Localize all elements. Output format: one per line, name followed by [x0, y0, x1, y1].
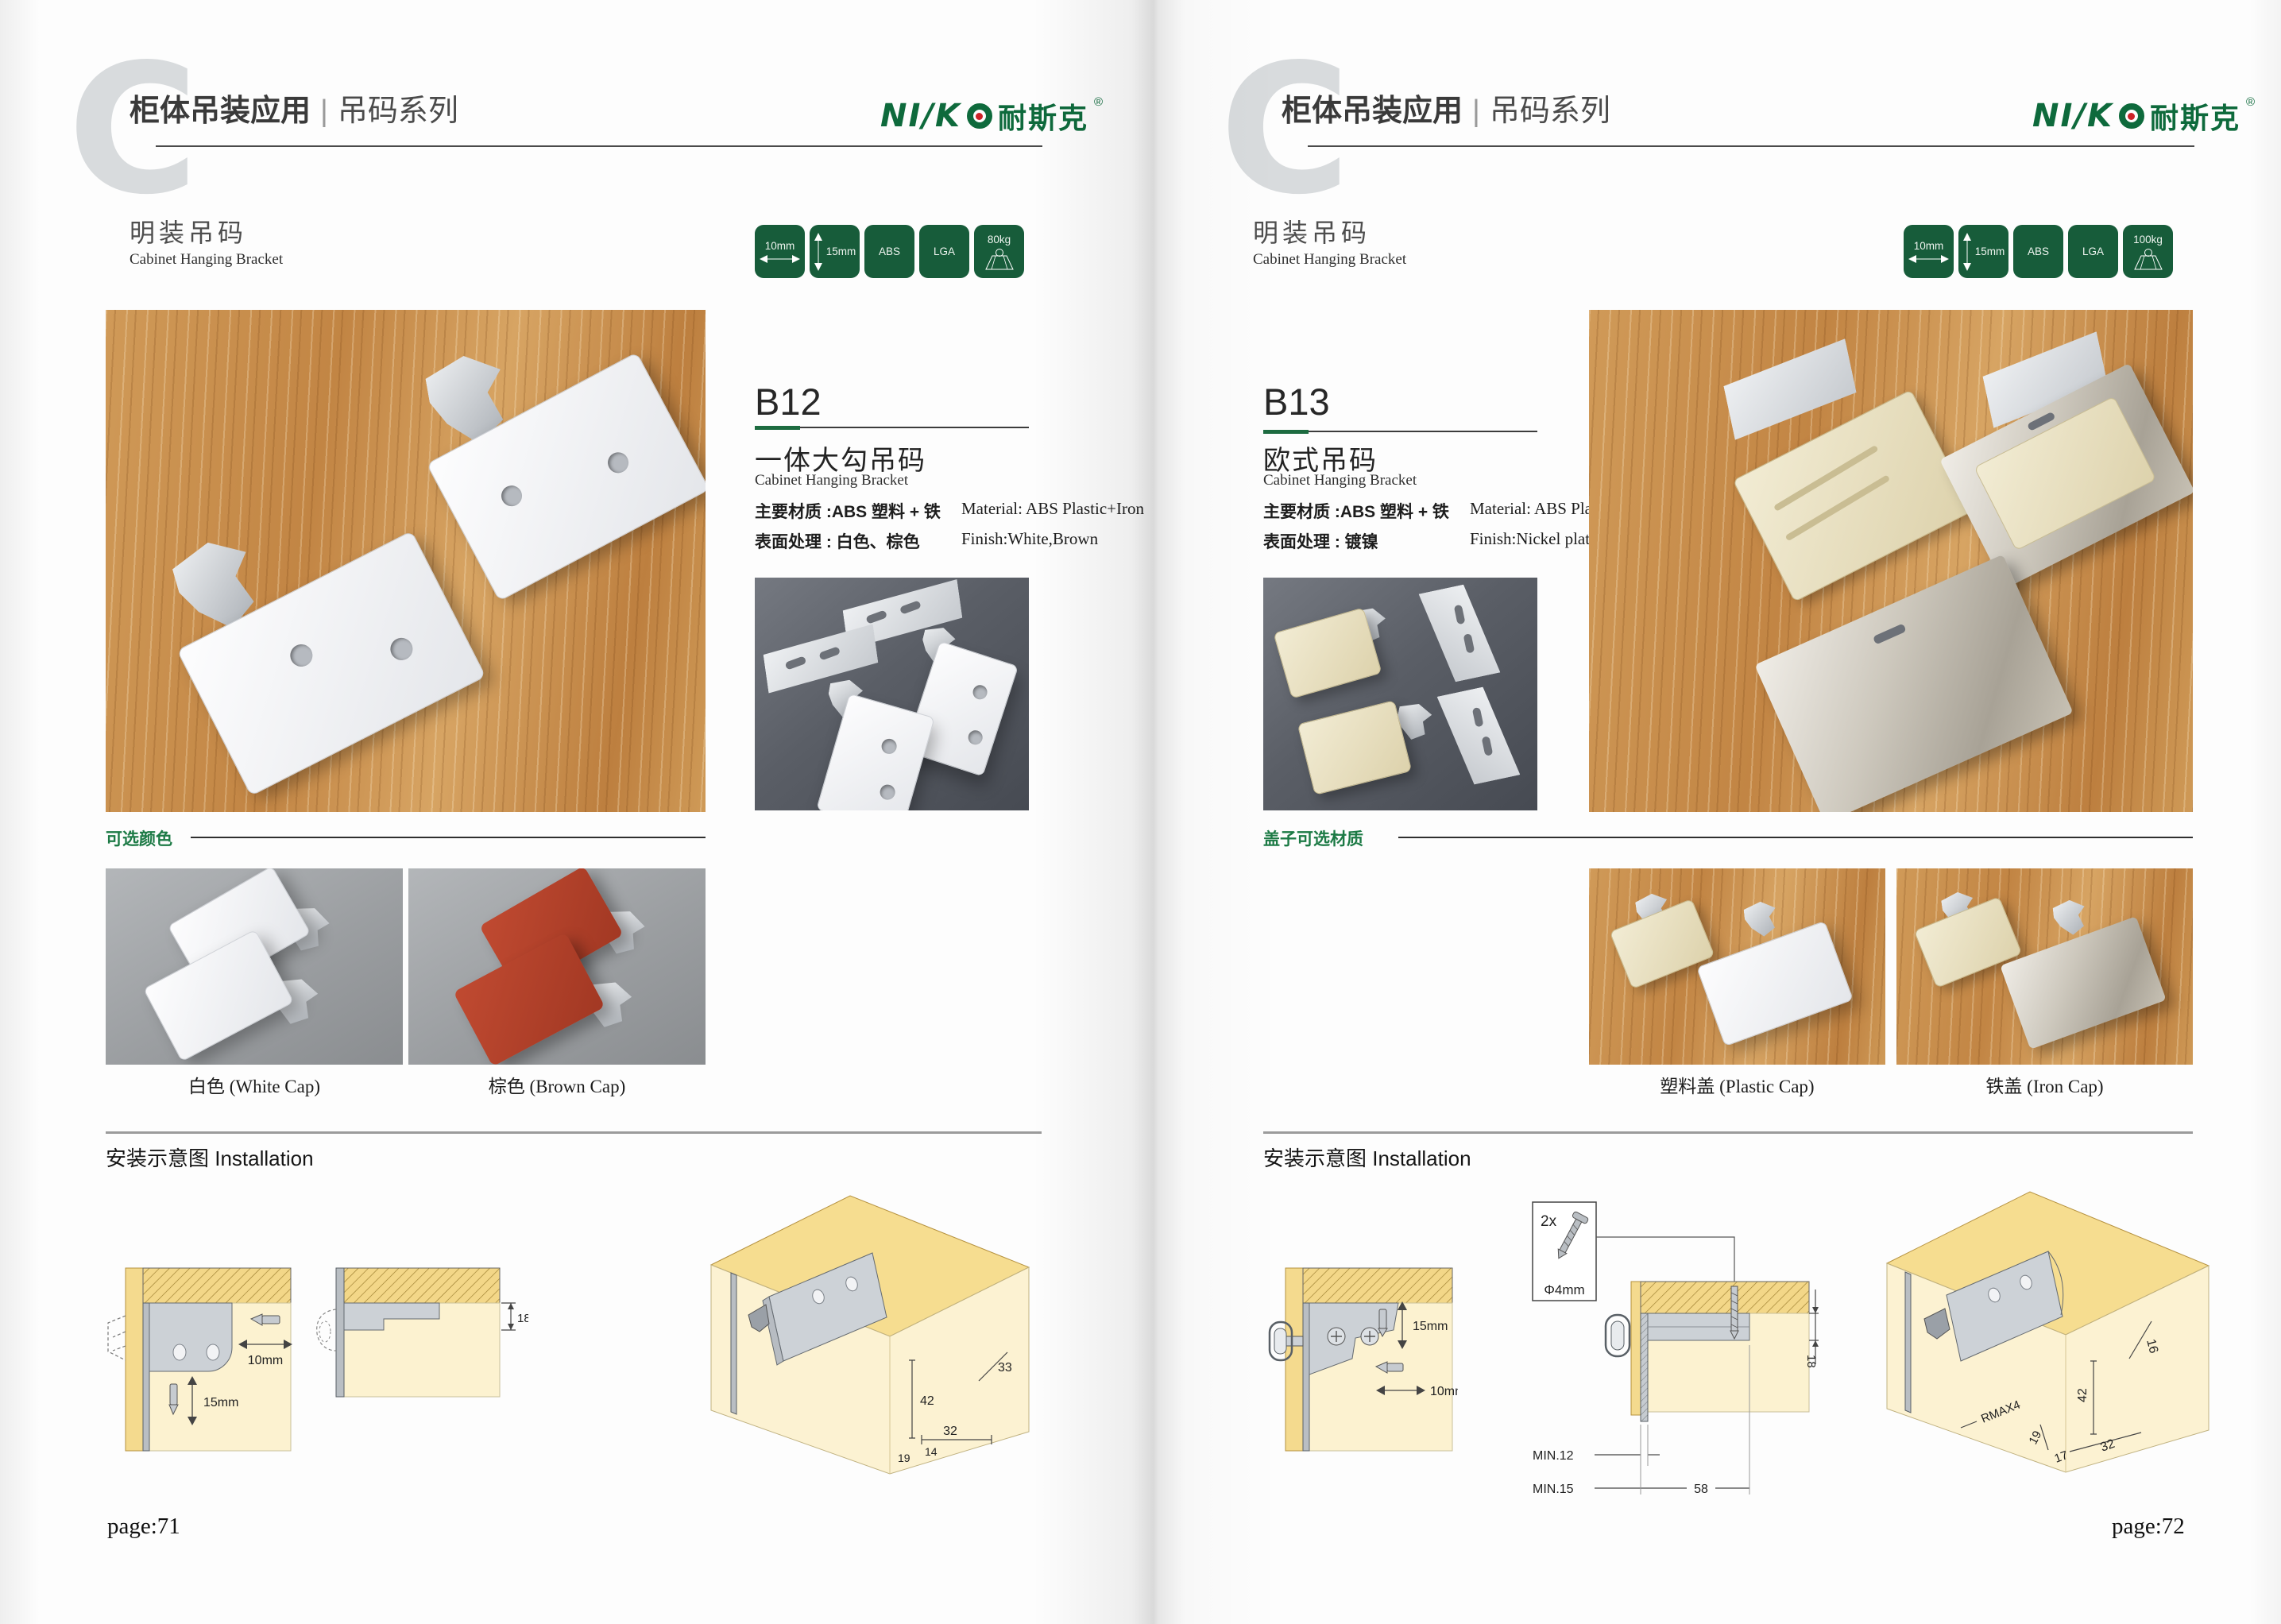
product-photo-detail — [755, 578, 1029, 810]
installation-diagram-section: 2x Φ4mm 18 — [1529, 1196, 1823, 1510]
dim-18: 18 — [1804, 1355, 1818, 1368]
product-photo-main — [106, 310, 706, 812]
screw-count-label: 2x — [1541, 1213, 1557, 1230]
badge-cert: LGA — [2068, 225, 2118, 278]
badge-material: ABS — [864, 225, 914, 278]
logo-latin-text: NI/K — [880, 98, 961, 134]
option-photo-plastic — [1589, 868, 1885, 1065]
rail-slot — [785, 655, 807, 670]
installation-diagram-side: 18 — [312, 1263, 528, 1402]
logo-cjk-text: 耐斯克 — [2150, 95, 2240, 137]
dim-42: 42 — [920, 1394, 934, 1408]
logo-red-dot-icon — [2128, 113, 2135, 120]
arrow-horizontal-icon — [760, 254, 800, 264]
spec-badges: 10mm 15mm ABS LGA 80kg — [755, 225, 1024, 278]
diagram-svg: 42 16 RMAX4 19 17 32 — [1867, 1172, 2217, 1478]
header-title-bold: 柜体吊装应用 — [130, 95, 311, 128]
header-title-light: 吊码系列 — [1490, 95, 1610, 128]
badge-height-label: 15mm — [1975, 246, 2005, 257]
page-number: page:72 — [2112, 1514, 2185, 1540]
arrow-vertical-icon — [814, 233, 823, 271]
nickel-bracket-shape — [1939, 363, 2193, 589]
diagram-svg: 10mm 15mm — [103, 1263, 294, 1454]
logo-latin-text: NI/K — [2032, 98, 2113, 134]
badge-cert-label: LGA — [2082, 246, 2104, 257]
dim-min15: MIN.15 — [1533, 1483, 1574, 1496]
option-label-plastic: 塑料盖 (Plastic Cap) — [1589, 1071, 1885, 1098]
page-binding-shadow — [1033, 0, 1279, 1624]
plastic-cap-shape — [1696, 921, 1854, 1046]
badge-height-label: 15mm — [826, 246, 856, 257]
badge-load-label: 100kg — [2133, 234, 2163, 246]
screw-hole — [878, 783, 897, 802]
dim-42: 42 — [2076, 1388, 2090, 1402]
screw-hole — [971, 683, 989, 702]
rule-dark-segment — [800, 427, 1029, 428]
rail-slot — [1482, 736, 1494, 756]
option-label-white: 白色 (White Cap) — [106, 1071, 403, 1098]
option-label-iron: 铁盖 (Iron Cap) — [1896, 1071, 2193, 1098]
dim-10mm: 10mm — [1430, 1385, 1458, 1398]
options-rule — [191, 837, 706, 838]
badge-cert: LGA — [919, 225, 969, 278]
rail-slot — [899, 600, 922, 614]
spec-material-cn: 主要材质 :ABS 塑料 + 铁 — [1263, 499, 1470, 523]
screw-hole — [387, 634, 417, 664]
badge-width-label: 10mm — [1914, 240, 1944, 252]
rail-slot — [1454, 605, 1466, 625]
options-rule — [1398, 837, 2193, 838]
header-rule — [156, 145, 1042, 147]
chapter-watermark-letter: C — [68, 41, 199, 220]
badge-width-label: 10mm — [765, 240, 795, 252]
mounting-rail-shape — [1419, 581, 1501, 686]
dim-15mm: 15mm — [203, 1396, 238, 1409]
installation-rule — [106, 1131, 1042, 1134]
product-code: B12 — [755, 380, 822, 423]
header-title-divider: | — [1472, 95, 1480, 128]
product-code-rule — [1263, 430, 1537, 434]
section-title-cn: 明装吊码 — [130, 213, 247, 249]
page-header-title: 柜体吊装应用|吊码系列 — [130, 86, 458, 130]
mounting-rail-shape — [1437, 683, 1521, 788]
badge-cert-label: LGA — [934, 246, 955, 257]
rail-slot — [1472, 707, 1484, 728]
dim-min12: MIN.12 — [1533, 1449, 1574, 1463]
metal-hook-shape — [1743, 900, 1778, 938]
badge-load-label: 80kg — [988, 234, 1011, 246]
screw-hole — [604, 449, 632, 477]
installation-rule — [1263, 1131, 2193, 1134]
page-edge-shadow — [2249, 0, 2281, 1624]
header-title-bold: 柜体吊装应用 — [1282, 95, 1463, 128]
rule-green-segment — [755, 426, 800, 430]
options-title: 可选颜色 — [106, 826, 172, 850]
dim-15mm: 15mm — [1413, 1320, 1448, 1333]
rail-slot — [865, 609, 887, 624]
metal-hook-shape — [2052, 899, 2087, 937]
page-number: page:71 — [107, 1514, 180, 1540]
bracket-detail-line — [1773, 445, 1879, 512]
section-title-en: Cabinet Hanging Bracket — [130, 251, 283, 269]
logo-o-icon — [967, 103, 992, 129]
product-name-en: Cabinet Hanging Bracket — [755, 472, 908, 489]
badge-width: 10mm — [755, 225, 805, 278]
badge-height: 15mm — [810, 225, 860, 278]
mounting-rail-shape — [761, 624, 880, 693]
installation-diagram-3d: 42 16 RMAX4 19 17 32 — [1867, 1172, 2217, 1478]
dim-58: 58 — [1694, 1483, 1708, 1496]
rail-slot — [1463, 633, 1475, 654]
screw-hole — [497, 482, 525, 510]
badge-load: 100kg — [2123, 225, 2173, 278]
diagram-svg: 2x Φ4mm 18 — [1529, 1196, 1823, 1510]
arrow-horizontal-icon — [1908, 254, 1949, 264]
badge-material-label: ABS — [2028, 246, 2049, 257]
installation-diagram-front: 15mm 10mm — [1263, 1263, 1458, 1454]
brand-logo: NI/K 耐斯克 ® — [2032, 95, 2255, 137]
installation-title: 安装示意图 Installation — [106, 1143, 314, 1172]
product-photo-main — [1589, 310, 2193, 812]
product-name-en: Cabinet Hanging Bracket — [1263, 472, 1417, 489]
option-label-brown: 棕色 (Brown Cap) — [408, 1071, 706, 1098]
dim-18: 18 — [517, 1312, 528, 1325]
product-photo-detail — [1263, 578, 1537, 810]
bracket-detail-line — [1785, 474, 1891, 541]
installation-diagram-3d: 42 32 33 14 19 — [699, 1176, 1041, 1478]
diagram-svg: 15mm 10mm — [1263, 1263, 1458, 1454]
badge-material-label: ABS — [879, 246, 900, 257]
dim-10mm: 10mm — [248, 1354, 283, 1367]
dim-14: 14 — [925, 1445, 938, 1458]
option-photo-white — [106, 868, 403, 1065]
cream-bracket-shape — [1273, 607, 1382, 698]
header-rule — [1308, 145, 2194, 147]
badge-height: 15mm — [1958, 225, 2008, 278]
badge-width: 10mm — [1904, 225, 1954, 278]
installation-title: 安装示意图 Installation — [1263, 1143, 1471, 1172]
weight-icon — [2131, 248, 2166, 270]
cover-slot — [1873, 623, 1907, 644]
diagram-svg: 42 32 33 14 19 — [699, 1176, 1041, 1478]
logo-o-icon — [2119, 103, 2144, 129]
arrow-vertical-icon — [1962, 233, 1972, 271]
badge-material: ABS — [2013, 225, 2063, 278]
screw-hole — [880, 737, 899, 756]
option-photo-brown — [408, 868, 706, 1065]
diagram-svg: 18 — [312, 1263, 528, 1402]
product-code-rule — [755, 426, 1029, 430]
installation-diagram-front: 10mm 15mm — [103, 1263, 294, 1454]
badge-load: 80kg — [974, 225, 1024, 278]
header-title-divider: | — [320, 95, 328, 128]
rule-dark-segment — [1309, 431, 1537, 432]
spec-finish-cn: 表面处理 : 镀镍 — [1263, 529, 1470, 553]
weight-icon — [982, 248, 1017, 270]
option-photo-iron — [1896, 868, 2193, 1065]
page-edge-shadow — [0, 0, 40, 1624]
spec-finish-cn: 表面处理 : 白色、棕色 — [755, 529, 961, 553]
cream-bracket-shape — [1297, 700, 1413, 795]
screw-hole — [966, 729, 984, 747]
screw-dia-label: Φ4mm — [1544, 1282, 1584, 1297]
logo-red-dot-icon — [976, 113, 983, 120]
dim-33: 33 — [998, 1361, 1012, 1375]
page-header-title: 柜体吊装应用|吊码系列 — [1282, 86, 1610, 130]
dim-19: 19 — [898, 1452, 910, 1464]
screw-hole — [287, 640, 317, 671]
spec-badges: 10mm 15mm ABS LGA 100kg — [1904, 225, 2173, 278]
catalog-spread: C 柜体吊装应用|吊码系列 NI/K 耐斯克 ® 明装吊码 Cabinet Ha… — [0, 0, 2281, 1624]
dim-32: 32 — [943, 1425, 957, 1438]
spec-material-cn: 主要材质 :ABS 塑料 + 铁 — [755, 499, 961, 523]
rail-slot — [818, 646, 841, 660]
header-title-light: 吊码系列 — [338, 95, 458, 128]
iron-cap-shape — [2000, 916, 2166, 1049]
